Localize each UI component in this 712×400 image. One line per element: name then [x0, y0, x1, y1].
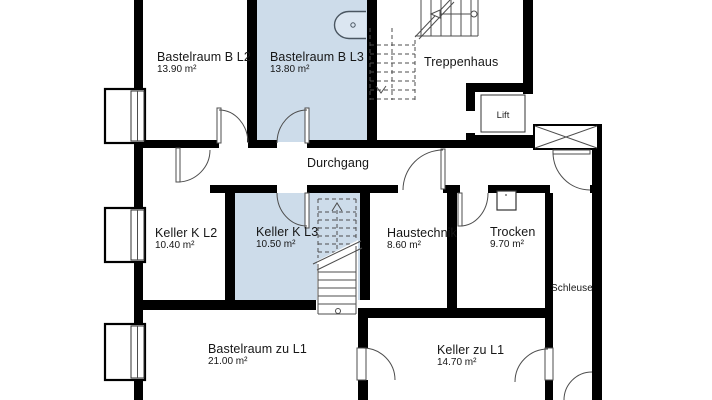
room-label-keller-zu-l1: Keller zu L1 14.70 m² — [437, 343, 504, 368]
wall-segment — [134, 141, 143, 211]
wall-segment — [134, 0, 143, 92]
wall-segment — [592, 124, 602, 400]
door-icon — [564, 372, 592, 400]
room-name: Keller K L3 — [256, 225, 318, 239]
room-label-bastelraum-b-l2: Bastelraum B L2 13.90 m² — [157, 50, 251, 75]
door-icon — [458, 193, 488, 226]
room-name: Schleuse — [551, 283, 593, 294]
wall-segment — [248, 140, 277, 148]
room-label-bastelraum-zu-l1: Bastelraum zu L1 21.00 m² — [208, 342, 307, 367]
wall-segment — [358, 380, 368, 400]
door-icon — [217, 108, 248, 143]
wall-segment — [225, 193, 235, 300]
wall-segment — [466, 135, 533, 148]
room-name: Treppenhaus — [424, 55, 498, 69]
room-area-text: 14.70 m² — [437, 357, 504, 368]
room-label-trocken: Trocken 9.70 m² — [490, 225, 535, 250]
wall-segment — [134, 260, 143, 327]
wall-segment — [360, 193, 370, 300]
wall-segment — [358, 308, 553, 318]
door-icon — [176, 148, 210, 182]
room-name: Keller zu L1 — [437, 343, 504, 357]
window-icon — [105, 324, 145, 380]
wall-segment — [466, 83, 475, 143]
room-label-bastelraum-b-l3: Bastelraum B L3 13.80 m² — [270, 50, 364, 75]
room-label-haustechnik: Haustechnik 8.60 m² — [387, 226, 457, 251]
wall-segment — [210, 185, 277, 193]
wall-segment — [523, 0, 533, 94]
wall-segment — [307, 185, 398, 193]
room-area-text: 8.60 m² — [387, 240, 457, 251]
wall-segment — [367, 0, 377, 142]
room-name: Bastelraum zu L1 — [208, 342, 307, 356]
room-area-text: 10.40 m² — [155, 240, 217, 251]
room-name: Bastelraum B L2 — [157, 50, 251, 64]
door-icon — [403, 149, 445, 190]
room-label-durchgang: Durchgang — [307, 156, 369, 170]
room-area-text: 13.80 m² — [270, 64, 364, 75]
door-icon — [553, 150, 590, 190]
room-label-treppenhaus: Treppenhaus — [424, 55, 498, 69]
wall-segment — [545, 379, 553, 400]
staircase-icon — [370, 0, 478, 100]
room-label-lift: Lift — [481, 110, 525, 121]
room-label-keller-k-l2: Keller K L2 10.40 m² — [155, 226, 217, 251]
room-name: Keller K L2 — [155, 226, 217, 240]
door-icon — [357, 348, 395, 380]
room-area-text: 13.90 m² — [157, 64, 251, 75]
wall-segment — [134, 300, 316, 310]
room-label-keller-k-l3: Keller K L3 10.50 m² — [256, 225, 318, 250]
wall-segment — [358, 318, 368, 348]
wall-segment — [138, 140, 219, 148]
equipment-box-icon — [497, 191, 516, 210]
window-icon — [105, 89, 145, 143]
wall-segment — [488, 185, 550, 193]
room-area-text: 10.50 m² — [256, 239, 318, 250]
room-name: Durchgang — [307, 156, 369, 170]
wall-segment — [545, 193, 553, 348]
room-label-schleuse: Schleuse — [551, 283, 593, 294]
door-icon — [515, 348, 553, 382]
wall-segment — [443, 185, 460, 193]
room-name: Haustechnik — [387, 226, 457, 240]
floor-plan: Bastelraum B L2 13.90 m² Bastelraum B L3… — [0, 0, 712, 400]
room-area-text: 9.70 m² — [490, 239, 535, 250]
room-area-text: 21.00 m² — [208, 356, 307, 367]
room-name: Trocken — [490, 225, 535, 239]
wall-segment — [307, 140, 600, 148]
wall-segment — [134, 378, 143, 400]
room-name: Bastelraum B L3 — [270, 50, 364, 64]
window-icon — [105, 208, 145, 262]
room-name: Lift — [497, 110, 510, 121]
wall-segment — [466, 83, 533, 92]
wall-segment — [590, 185, 602, 193]
